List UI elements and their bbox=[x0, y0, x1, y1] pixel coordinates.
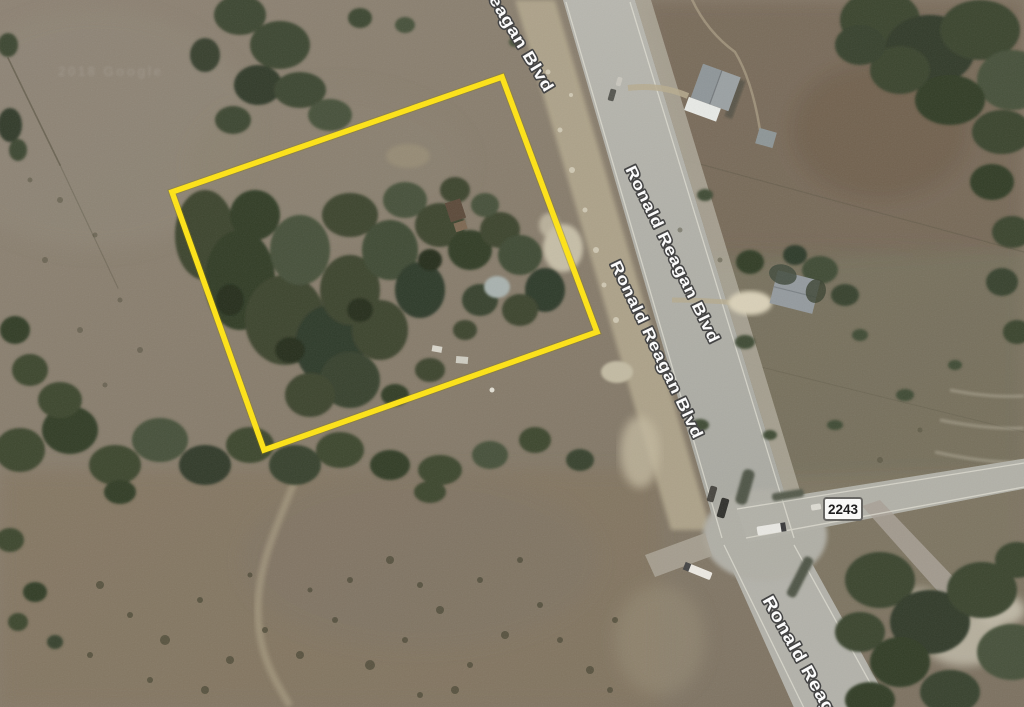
photo-grain-overlay bbox=[0, 0, 1024, 707]
map-canvas: 2018 Google bbox=[0, 0, 1024, 707]
satellite-map: 2018 Google bbox=[0, 0, 1024, 707]
